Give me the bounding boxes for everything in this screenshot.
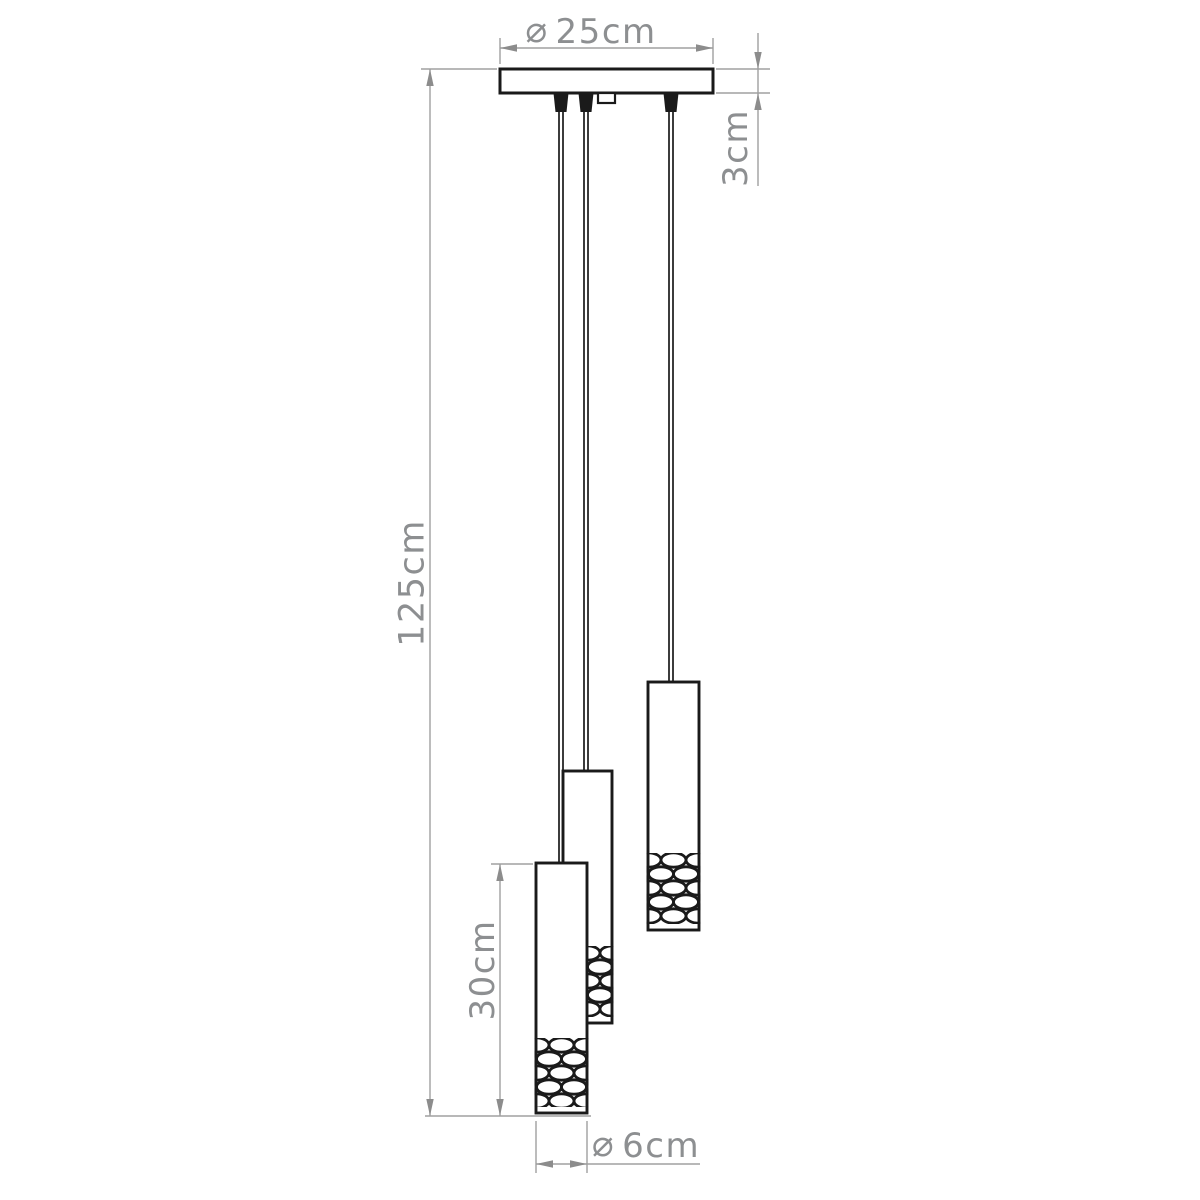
shades: [499, 682, 749, 1113]
arrow-left-icon: [500, 44, 517, 52]
diameter-symbol: ⌀: [525, 13, 548, 49]
bubble: [499, 1066, 524, 1080]
label-canopy-diameter: ⌀ 25cm: [525, 14, 656, 50]
pendant-line-drawing: [0, 0, 1200, 1200]
bubble: [711, 881, 736, 895]
bubble: [512, 1052, 537, 1066]
bubble: [612, 1052, 637, 1066]
arrow-up-icon: [496, 864, 503, 881]
arrow-down-icon: [496, 1099, 503, 1116]
cord-grip: [554, 93, 569, 112]
shade-right: [611, 682, 749, 930]
ceiling-canopy: [500, 69, 713, 93]
bubble: [599, 1038, 624, 1052]
bubble: [625, 974, 650, 988]
bubble: [611, 881, 636, 895]
arrow-down-icon: [426, 1099, 433, 1116]
bubble: [638, 988, 663, 1002]
bubble: [611, 909, 636, 923]
shade-body: [536, 863, 587, 1113]
bubble: [625, 1002, 650, 1016]
bubble: [724, 895, 749, 909]
label-shade-diameter: ⌀ 6cm: [592, 1128, 700, 1164]
bubble: [499, 1038, 524, 1052]
bubble: [599, 1066, 624, 1080]
diameter-symbol: ⌀: [592, 1127, 615, 1163]
bubble: [612, 1080, 637, 1094]
bubble: [624, 867, 649, 881]
label-canopy-height: 3cm: [719, 109, 753, 187]
arrow-up-icon: [426, 69, 433, 86]
cord-grip: [579, 93, 594, 112]
bubble: [699, 867, 724, 881]
overall-drop-value: 125cm: [396, 519, 431, 647]
bubble: [699, 895, 724, 909]
bubble: [625, 946, 650, 960]
canopy-height-value: 3cm: [719, 109, 753, 187]
bubble: [587, 1080, 612, 1094]
arrow-up-icon: [754, 93, 761, 110]
arrow-down-icon: [754, 52, 761, 69]
shade-diameter-value: 6cm: [622, 1129, 700, 1163]
arrow-right-icon: [570, 1160, 587, 1167]
shade-left: [499, 863, 637, 1113]
arrow-left-icon: [536, 1160, 553, 1167]
label-shade-height: 30cm: [466, 919, 500, 1020]
arrow-right-icon: [696, 44, 713, 52]
bubble: [611, 853, 636, 867]
bubble: [587, 1052, 612, 1066]
label-overall-drop: 125cm: [396, 519, 431, 647]
shade-height-value: 30cm: [466, 919, 500, 1020]
bubble: [512, 1080, 537, 1094]
canopy-diameter-value: 25cm: [556, 15, 657, 49]
bubble: [711, 909, 736, 923]
bubble: [638, 960, 663, 974]
bubble: [613, 988, 638, 1002]
bubble: [711, 853, 736, 867]
pendant-fixture: [499, 69, 749, 1113]
cord-grip: [664, 93, 679, 112]
canopy-connector: [598, 93, 615, 103]
bubble: [724, 867, 749, 881]
bubble: [613, 960, 638, 974]
bubble: [624, 895, 649, 909]
bubble: [599, 1094, 624, 1108]
drawing-canvas: ⌀ 25cm 3cm 125cm 30cm ⌀ 6cm: [0, 0, 1200, 1200]
